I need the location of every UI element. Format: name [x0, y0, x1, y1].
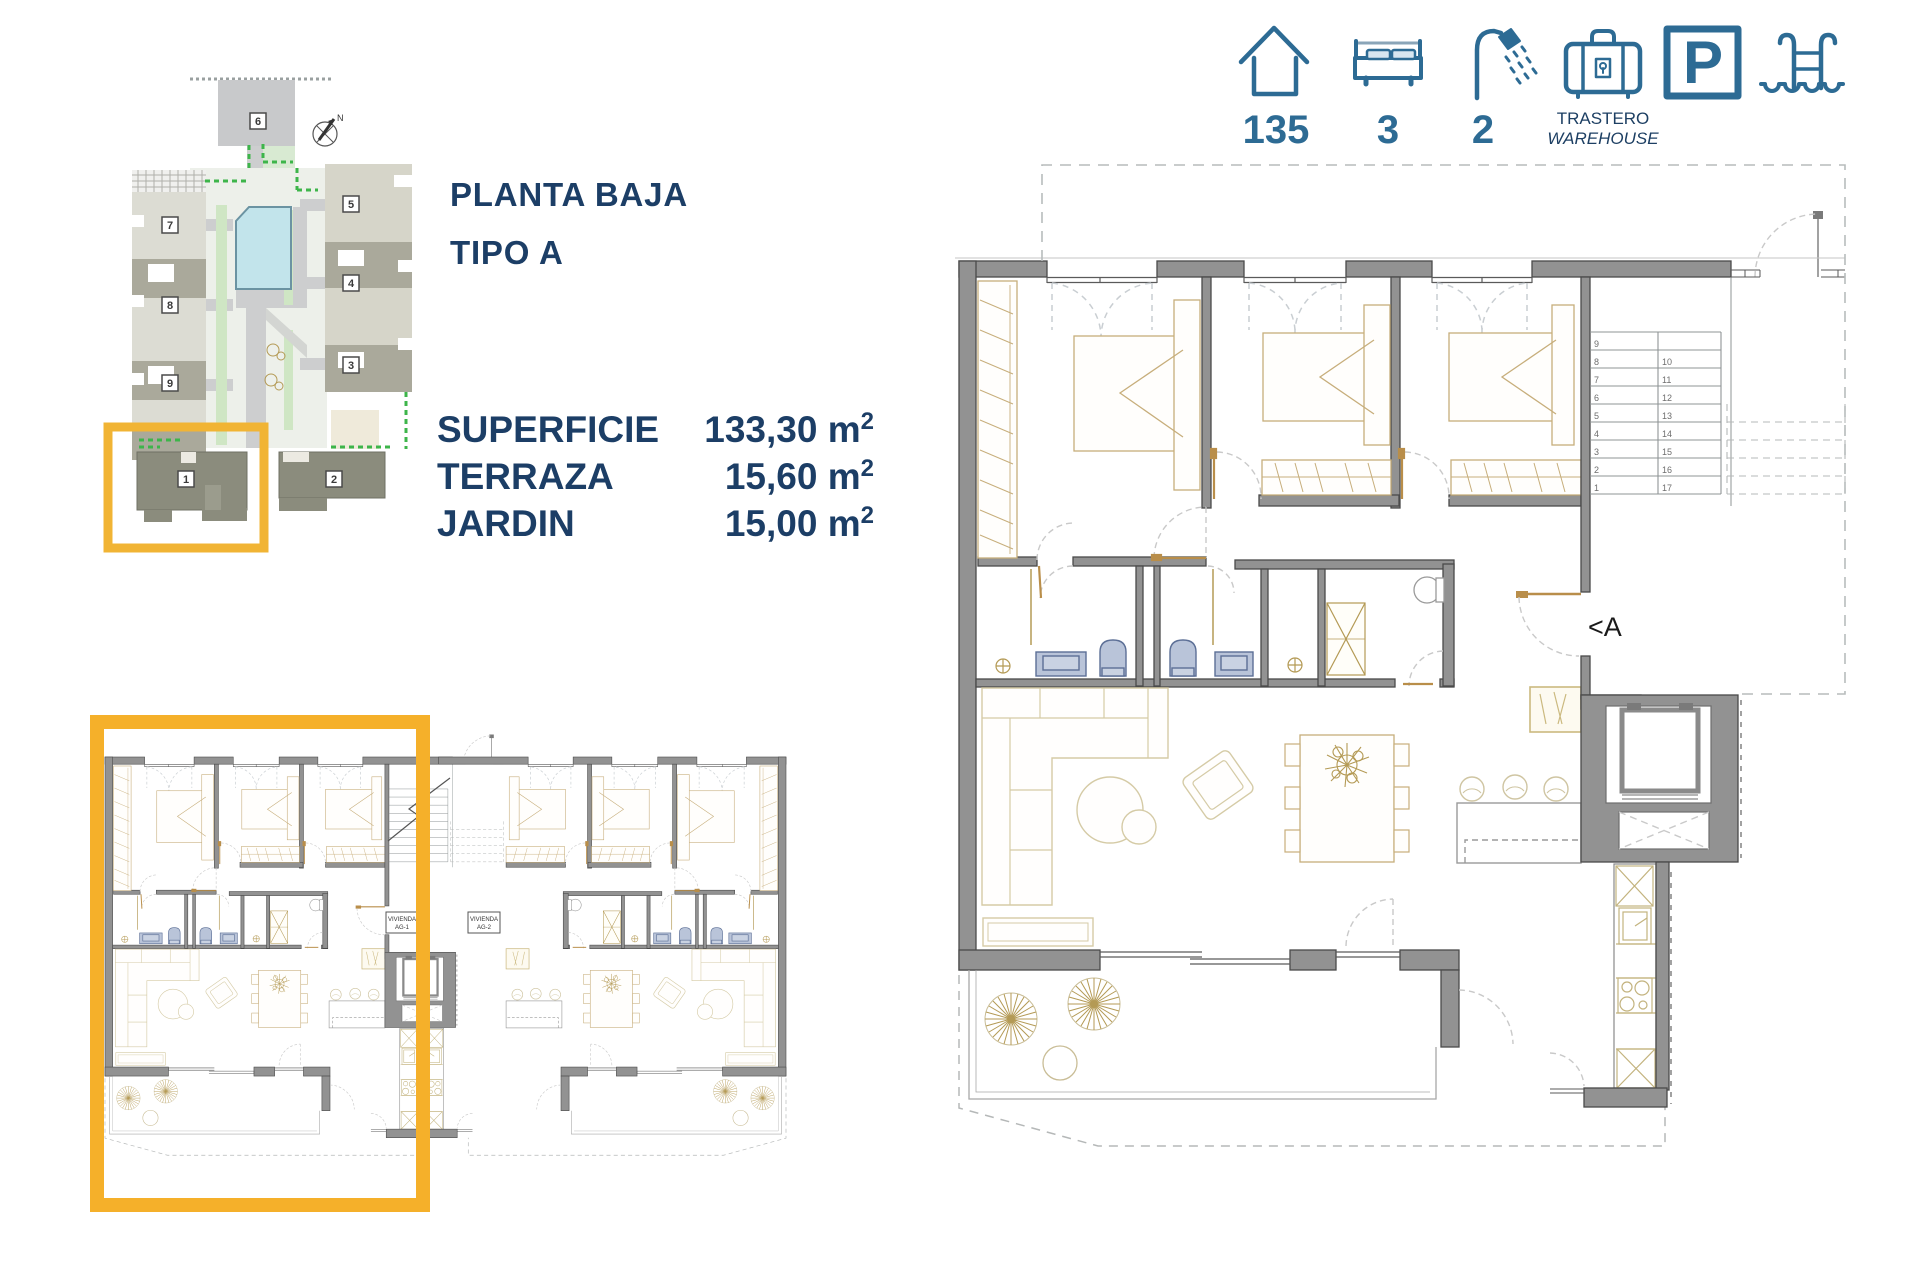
svg-text:2: 2 [1472, 108, 1494, 152]
svg-text:VIVIENDA: VIVIENDA [470, 917, 498, 923]
svg-text:3: 3 [348, 360, 354, 372]
svg-text:3: 3 [1594, 447, 1599, 457]
svg-text:14: 14 [1662, 429, 1672, 439]
svg-text:133,30 m2: 133,30 m2 [704, 408, 874, 450]
svg-text:12: 12 [1662, 393, 1672, 403]
svg-text:9: 9 [167, 378, 173, 390]
svg-text:17: 17 [1662, 483, 1672, 493]
svg-text:WAREHOUSE: WAREHOUSE [1547, 129, 1659, 148]
svg-text:P: P [1683, 29, 1723, 96]
svg-text:11: 11 [1662, 375, 1671, 385]
svg-text:<A: <A [1588, 612, 1622, 642]
svg-text:VIVIENDA: VIVIENDA [388, 917, 416, 923]
svg-text:TERRAZA: TERRAZA [437, 456, 614, 497]
svg-text:JARDIN: JARDIN [437, 503, 575, 544]
svg-text:PLANTA BAJA: PLANTA BAJA [450, 176, 688, 213]
svg-text:AG-2: AG-2 [477, 925, 492, 931]
svg-text:7: 7 [1594, 375, 1599, 385]
svg-text:N: N [337, 113, 344, 123]
svg-text:6: 6 [255, 116, 261, 128]
svg-text:TIPO A: TIPO A [450, 234, 564, 271]
svg-text:3: 3 [1377, 108, 1399, 152]
svg-text:2: 2 [1594, 465, 1599, 475]
svg-text:9: 9 [1594, 339, 1599, 349]
svg-text:8: 8 [1594, 357, 1599, 367]
svg-text:15,60 m2: 15,60 m2 [725, 455, 874, 497]
svg-text:1: 1 [1594, 483, 1599, 493]
svg-text:10: 10 [1662, 357, 1672, 367]
svg-text:5: 5 [1594, 411, 1599, 421]
svg-text:135: 135 [1243, 108, 1310, 152]
svg-text:8: 8 [167, 300, 173, 312]
svg-text:13: 13 [1662, 411, 1672, 421]
svg-text:TRASTERO: TRASTERO [1557, 109, 1650, 128]
svg-text:2: 2 [331, 474, 337, 486]
svg-text:5: 5 [348, 199, 354, 211]
svg-text:6: 6 [1594, 393, 1599, 403]
svg-text:AG-1: AG-1 [395, 925, 410, 931]
svg-text:16: 16 [1662, 465, 1672, 475]
svg-text:15: 15 [1662, 447, 1672, 457]
svg-text:SUPERFICIE: SUPERFICIE [437, 409, 659, 450]
svg-text:15,00 m2: 15,00 m2 [725, 502, 874, 544]
svg-text:4: 4 [1594, 429, 1599, 439]
svg-text:7: 7 [167, 220, 173, 232]
svg-text:4: 4 [348, 278, 355, 290]
svg-text:1: 1 [183, 474, 189, 486]
